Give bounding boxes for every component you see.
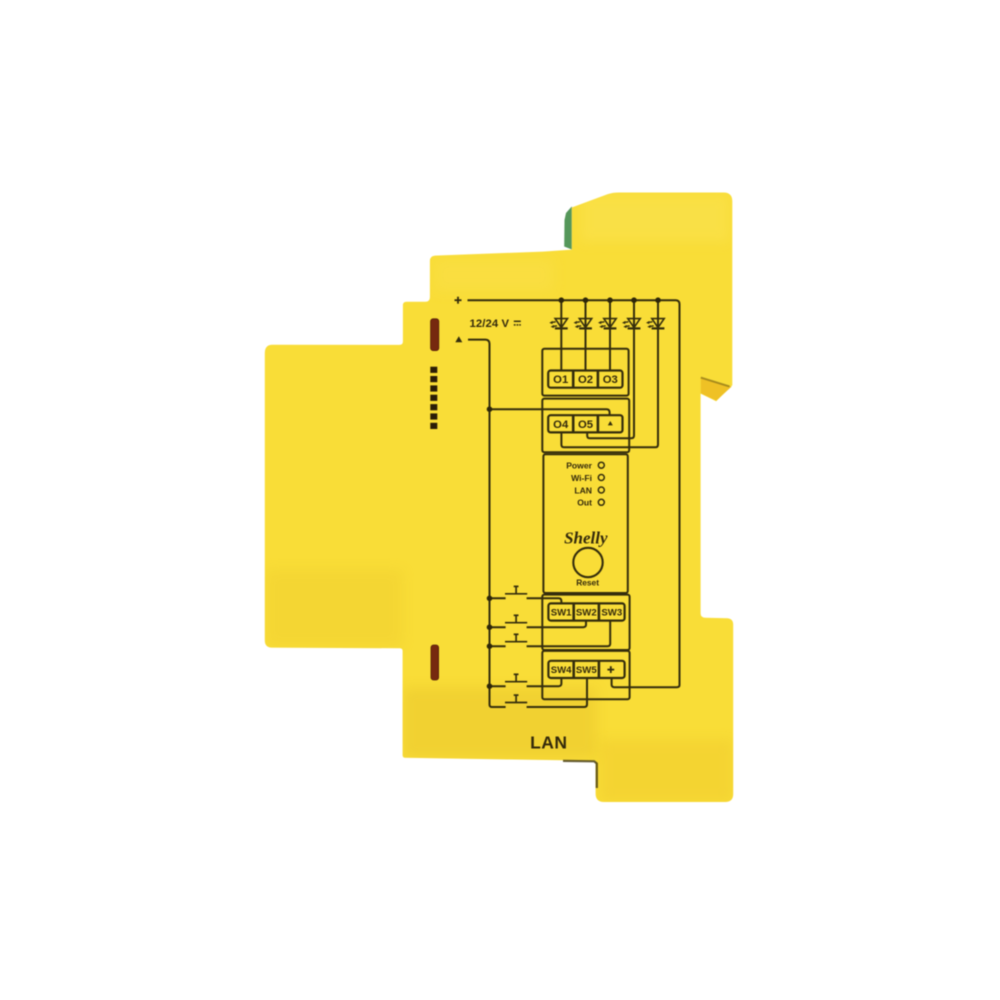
svg-text:LAN: LAN [530, 733, 567, 753]
svg-text:O3: O3 [603, 374, 618, 386]
svg-text:12/24 V: 12/24 V [470, 318, 510, 330]
svg-text:O2: O2 [578, 374, 593, 386]
svg-text:O5: O5 [578, 419, 593, 431]
svg-text:O4: O4 [553, 419, 569, 431]
svg-text:Shelly: Shelly [564, 529, 608, 548]
svg-text:SW2: SW2 [576, 608, 597, 619]
svg-text:LAN: LAN [574, 485, 592, 495]
svg-text:SW5: SW5 [576, 665, 597, 676]
svg-text:Power: Power [566, 461, 592, 471]
svg-text:O1: O1 [553, 374, 568, 386]
svg-text:Out: Out [577, 498, 592, 508]
svg-text:SW3: SW3 [601, 608, 622, 619]
svg-text:Reset: Reset [576, 578, 599, 588]
svg-text:SW4: SW4 [551, 665, 572, 676]
svg-text:SW1: SW1 [551, 608, 572, 619]
svg-text:Wi-Fi: Wi-Fi [571, 473, 592, 483]
